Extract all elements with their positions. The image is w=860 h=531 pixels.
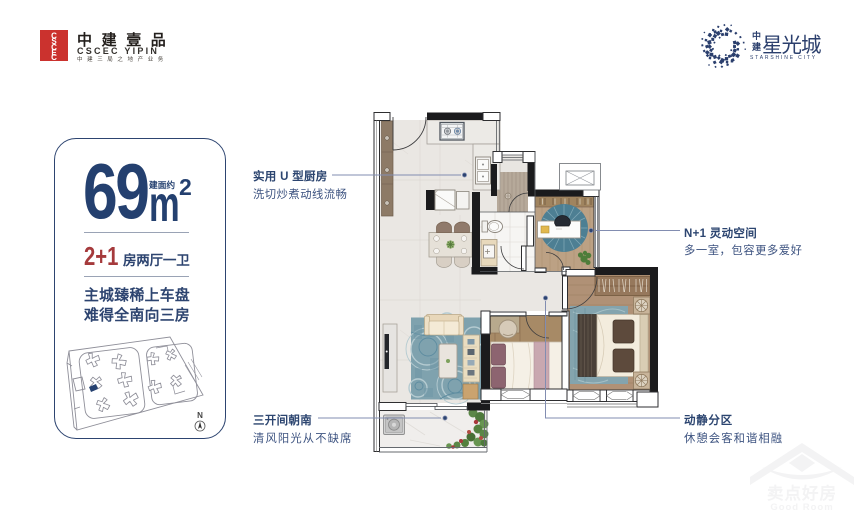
- svg-text:Good Room: Good Room: [770, 502, 833, 513]
- svg-text:卖点好房: 卖点好房: [767, 483, 837, 503]
